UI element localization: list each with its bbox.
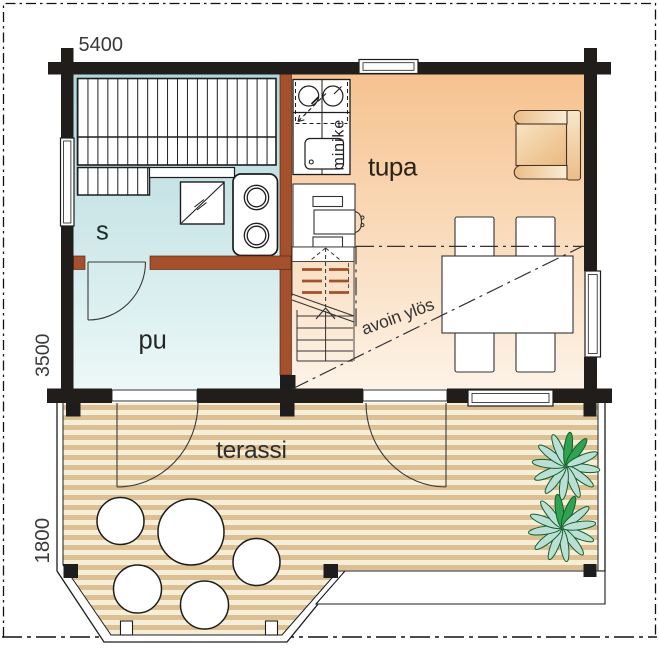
svg-text:tupa: tupa (368, 152, 418, 182)
svg-text:minike: minike (331, 119, 348, 171)
svg-text:5400: 5400 (79, 34, 124, 56)
svg-text:terassi: terassi (216, 437, 287, 464)
svg-text:3500: 3500 (32, 333, 54, 377)
svg-text:s: s (96, 218, 109, 246)
svg-text:1800: 1800 (31, 518, 54, 564)
svg-text:pu: pu (139, 327, 167, 355)
